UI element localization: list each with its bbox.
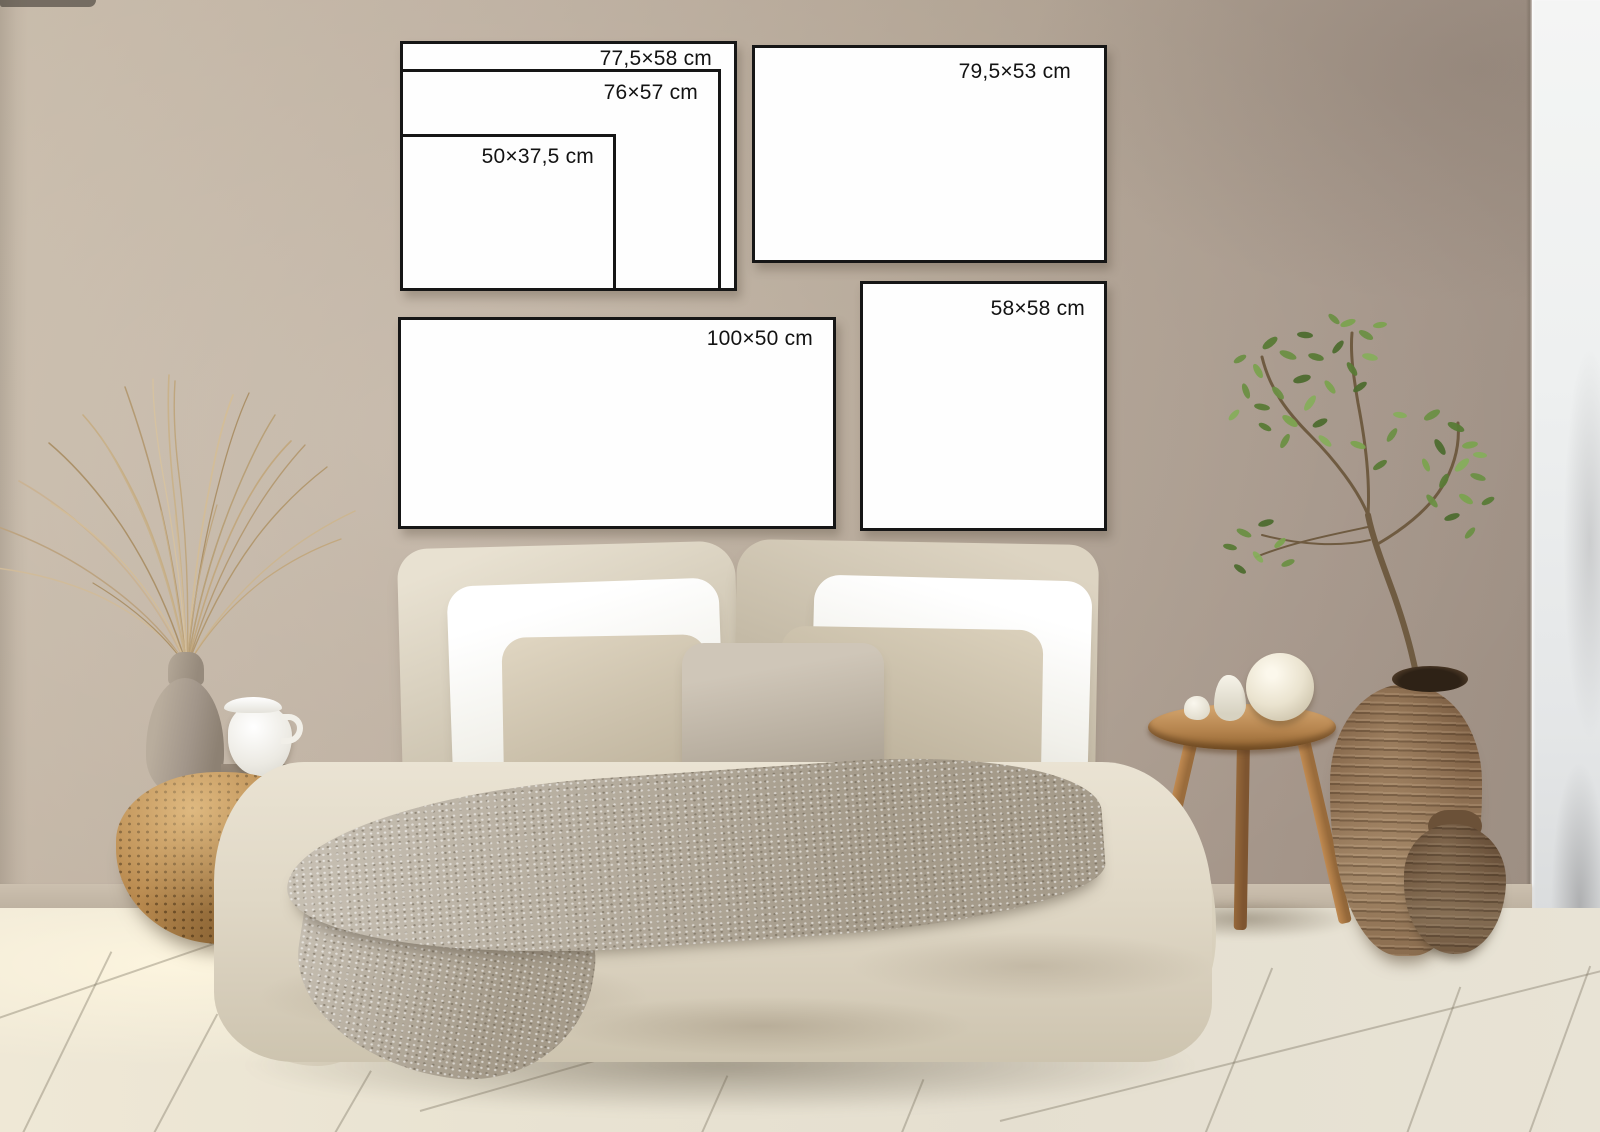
size-frame-100x50: 100×50 cm bbox=[398, 317, 836, 529]
floor-plank-seam bbox=[104, 1014, 218, 1132]
size-label-50x37-5: 50×37,5 cm bbox=[482, 145, 594, 168]
size-frame-50x37-5: 50×37,5 cm bbox=[400, 134, 616, 291]
white-pebble-decor bbox=[1184, 696, 1210, 720]
white-accent-wall bbox=[1532, 0, 1600, 934]
ceiling-beam-sliver bbox=[0, 0, 96, 7]
size-label-58x58: 58×58 cm bbox=[991, 297, 1085, 320]
woven-vase-mouth bbox=[1392, 666, 1468, 692]
floor-plank-seam bbox=[10, 951, 113, 1132]
round-ceramic-vase bbox=[1246, 653, 1314, 721]
size-label-77-5x58: 77,5×58 cm bbox=[600, 47, 712, 70]
size-frame-79-5x53: 79,5×53 cm bbox=[752, 45, 1107, 263]
dried-grass bbox=[0, 315, 405, 695]
size-label-100x50: 100×50 cm bbox=[707, 327, 813, 350]
bedroom-mockup-scene: 77,5×58 cm 76×57 cm 50×37,5 cm 79,5×53 c… bbox=[0, 0, 1600, 1132]
size-frame-58x58: 58×58 cm bbox=[860, 281, 1107, 531]
grass-strands bbox=[0, 375, 355, 667]
size-label-79-5x53: 79,5×53 cm bbox=[959, 60, 1071, 83]
potted-plant bbox=[1170, 295, 1510, 715]
floor-plank-seam bbox=[1521, 966, 1591, 1132]
size-label-76x57: 76×57 cm bbox=[604, 81, 698, 104]
